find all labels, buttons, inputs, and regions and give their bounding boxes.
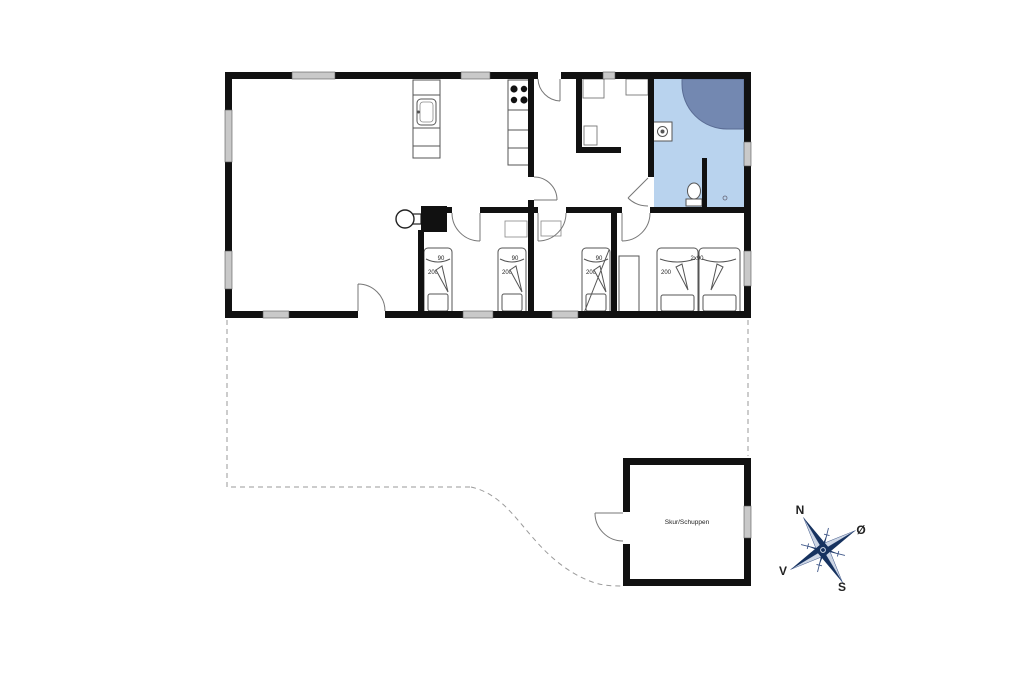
entrance-door	[538, 79, 560, 101]
window-living-west1	[225, 110, 232, 162]
svg-text:90: 90	[596, 256, 603, 262]
window-living-west2	[225, 251, 232, 289]
window-bedroom2-south	[552, 311, 578, 318]
toilet-icon	[686, 183, 702, 206]
bedroom1-door	[452, 213, 480, 241]
entrance-opening	[538, 72, 561, 79]
terrace-door	[358, 284, 385, 311]
wall-closet-west	[576, 79, 582, 150]
bed-single-3: 90 200	[582, 248, 610, 315]
chimney-block	[421, 206, 447, 232]
wall-corridor-a	[447, 207, 452, 213]
window-kitchen-north	[461, 72, 490, 79]
compass-south-label: S	[838, 580, 846, 594]
wood-stove-icon	[396, 210, 421, 228]
bedroom3-wardrobe	[619, 256, 639, 312]
wall-bathroom-west	[648, 79, 654, 177]
floorplan-drawing: 90 200 90 200 90 200 2x90 200	[0, 0, 1024, 682]
bedroom2-door	[538, 213, 566, 241]
shed-label: Skur/Schuppen	[665, 519, 710, 526]
bedroom4-door	[622, 213, 650, 241]
boundary-curve	[471, 487, 622, 586]
window-shed-east	[744, 506, 751, 538]
window-bedroom4-east	[744, 251, 751, 286]
bathroom-door	[628, 178, 648, 206]
shed-opening	[623, 512, 630, 544]
kitchen-island	[413, 80, 440, 158]
terrace-opening	[358, 311, 385, 318]
bedroom2-shelf	[541, 221, 561, 236]
compass-rose: N Ø S V	[771, 498, 875, 602]
boundary-left	[227, 320, 471, 487]
wall-corridor-d	[566, 207, 611, 213]
floorplan-page: 90 200 90 200 90 200 2x90 200	[0, 0, 1024, 682]
svg-text:2x90: 2x90	[690, 256, 704, 262]
bedroom1-shelf	[505, 221, 527, 237]
wall-bedroom1-west	[418, 230, 424, 318]
wall-corridor-c	[534, 207, 538, 213]
compass-east-label: Ø	[856, 523, 865, 537]
wall-bathroom-south	[650, 207, 744, 213]
wall-kitchen-upper	[528, 79, 534, 177]
wall-bedroom3-4	[611, 207, 617, 318]
wall-kitchen-lower	[528, 200, 534, 318]
window-living-south1	[263, 311, 289, 318]
wall-corridor-b	[480, 207, 528, 213]
svg-text:200: 200	[661, 270, 672, 276]
window-closet-north	[603, 72, 615, 79]
shed-door	[595, 513, 623, 541]
bed-single-2: 90 200	[498, 248, 526, 315]
kitchen-hall-door	[534, 177, 557, 200]
window-bedroom1-south	[463, 311, 493, 318]
bed-double: 2x90 200	[657, 248, 740, 315]
svg-text:90: 90	[512, 256, 519, 262]
hall-closet-cabinets	[583, 79, 648, 145]
window-living-north	[292, 72, 335, 79]
kitchen-counter	[508, 80, 530, 165]
compass-west-label: V	[779, 564, 787, 578]
shed-wall-south	[623, 579, 751, 586]
compass-north-label: N	[796, 503, 805, 517]
plot-boundary-dashed	[227, 320, 748, 586]
svg-text:90: 90	[438, 256, 445, 262]
washing-machine-icon	[653, 122, 672, 141]
wall-corridor-e	[617, 207, 622, 213]
wall-closet-south	[576, 147, 621, 153]
shed-wall-north	[623, 458, 751, 465]
bathroom-partition-wall	[702, 158, 707, 207]
bed-single-1: 90 200	[424, 248, 452, 315]
window-bathroom-east	[744, 142, 751, 166]
